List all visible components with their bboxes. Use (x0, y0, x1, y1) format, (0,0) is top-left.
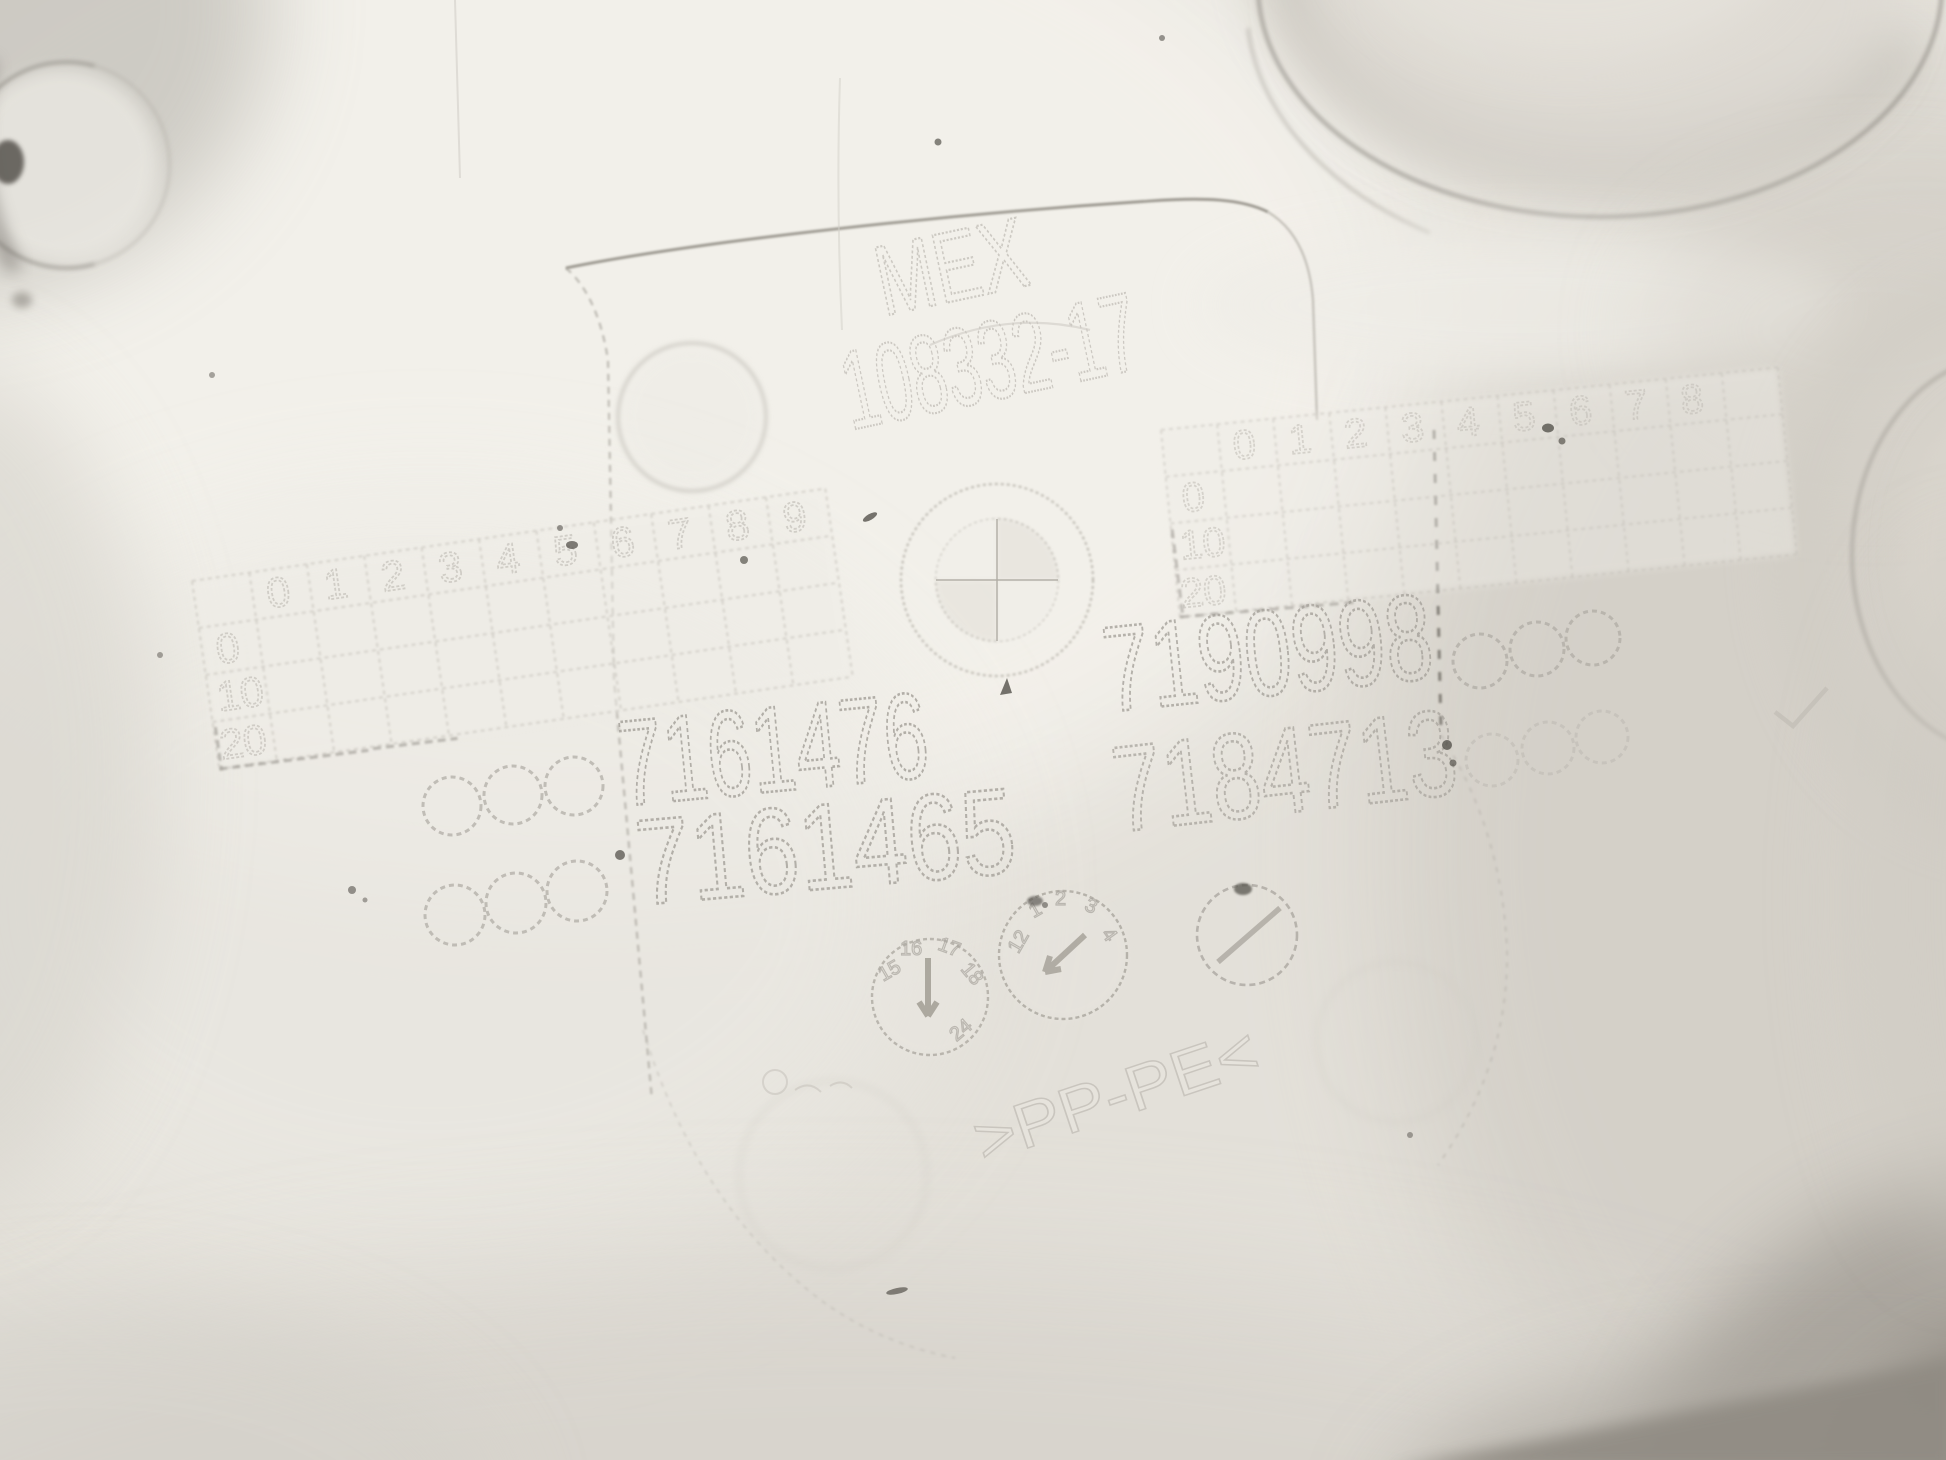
svg-text:5: 5 (1510, 392, 1537, 440)
svg-text:16: 16 (900, 938, 922, 960)
svg-text:8: 8 (1678, 375, 1705, 423)
svg-text:2: 2 (1342, 409, 1369, 457)
svg-text:7: 7 (1623, 381, 1650, 429)
svg-text:4: 4 (1454, 398, 1481, 446)
svg-text:10: 10 (1177, 518, 1227, 568)
svg-text:3: 3 (1399, 404, 1426, 452)
svg-text:0: 0 (1231, 421, 1258, 469)
svg-text:0: 0 (1180, 473, 1207, 521)
svg-text:10: 10 (214, 667, 267, 720)
svg-text:6: 6 (1567, 386, 1594, 434)
svg-text:1: 1 (1286, 415, 1313, 463)
svg-text:20: 20 (217, 715, 270, 768)
svg-text:2: 2 (1055, 888, 1066, 910)
